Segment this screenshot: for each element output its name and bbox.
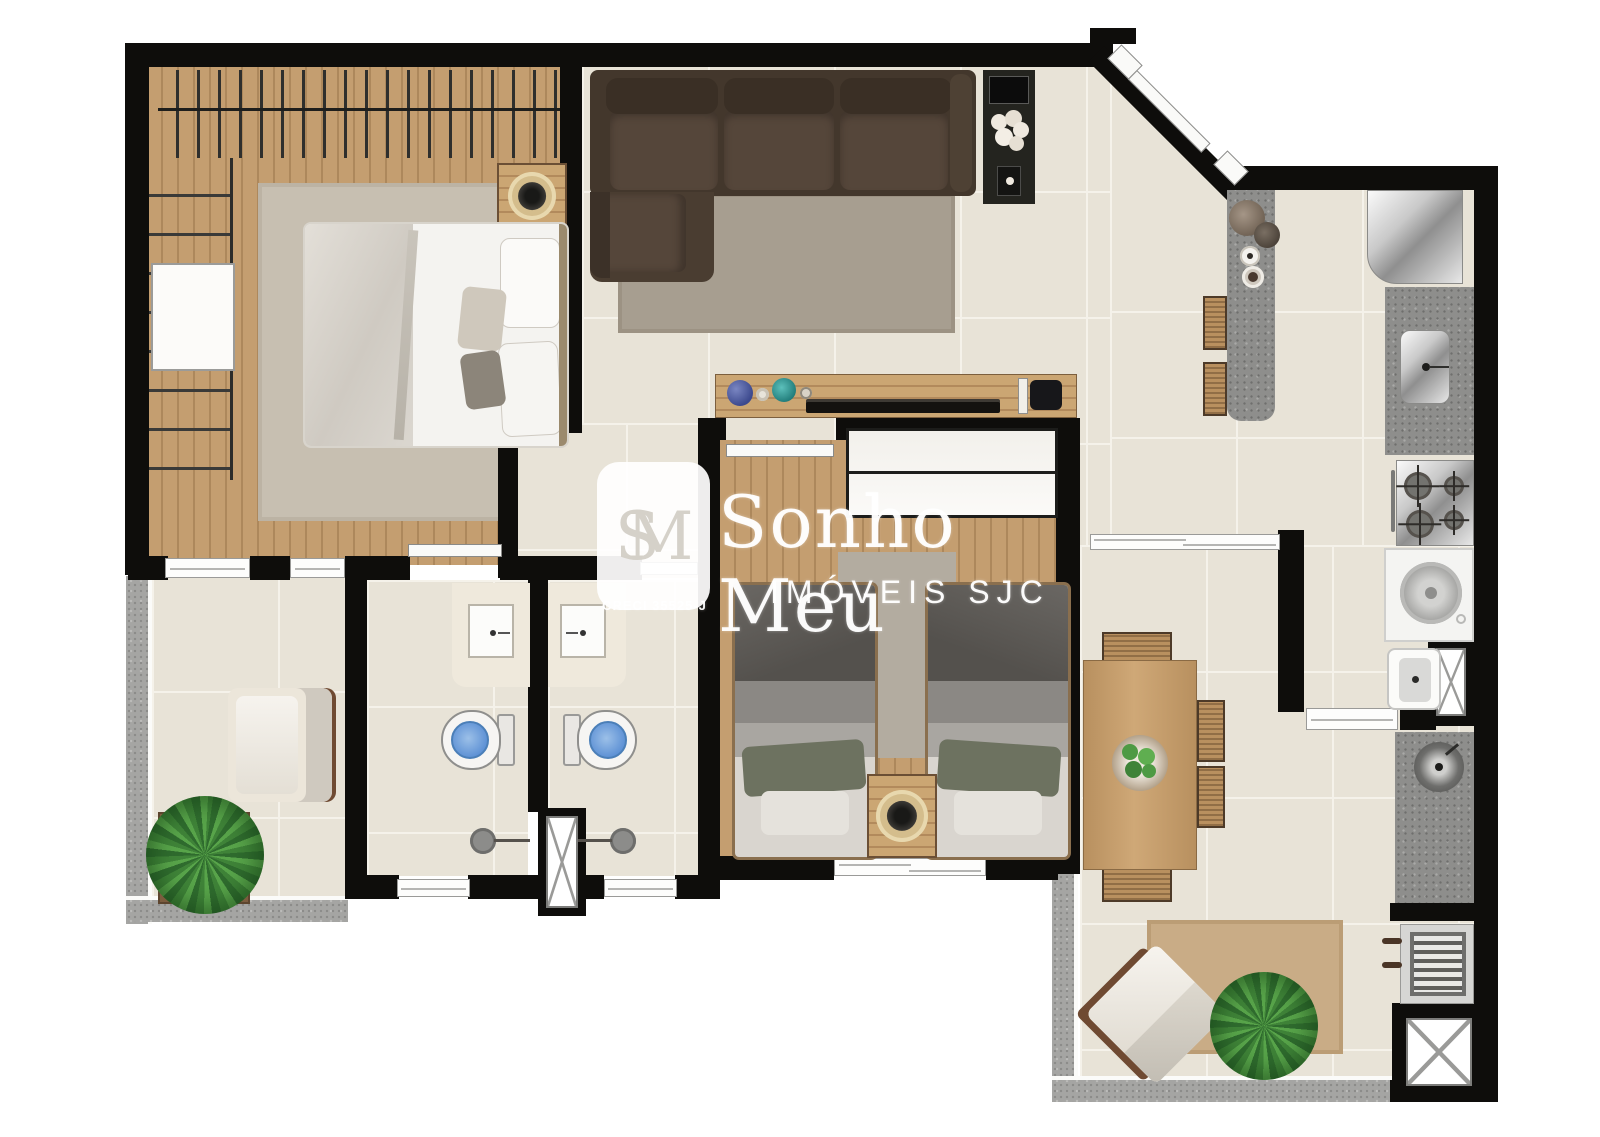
decor-bowl xyxy=(772,378,796,402)
decor-dish xyxy=(1240,246,1260,266)
vanity-sink-icon xyxy=(560,604,606,658)
twin-bed-icon xyxy=(928,585,1068,857)
laundry-tub-icon xyxy=(1387,648,1441,710)
duct-shaft-icon xyxy=(1406,1018,1472,1086)
wall xyxy=(250,556,290,580)
wall xyxy=(128,556,168,580)
wall xyxy=(718,418,726,440)
wall xyxy=(1090,28,1136,44)
closet-cabinet xyxy=(151,263,235,371)
dining-chair-icon xyxy=(1102,868,1172,902)
decor-cup xyxy=(1242,266,1264,288)
hanger-rack-icon xyxy=(158,70,560,158)
skewer-handle xyxy=(1382,938,1402,944)
burner-icon xyxy=(1444,510,1464,530)
armchair-icon xyxy=(228,688,332,802)
balcony-ledge xyxy=(1052,874,1078,1102)
vanity-sink-icon xyxy=(468,604,514,658)
wall xyxy=(1474,166,1498,1102)
shower-pipe xyxy=(578,839,612,842)
remote-icon xyxy=(1018,378,1028,414)
wall xyxy=(468,875,604,899)
wall xyxy=(1390,903,1498,921)
wall xyxy=(345,580,367,878)
washing-machine-icon xyxy=(1384,548,1474,642)
twin-bed-icon xyxy=(735,585,875,857)
cooktop-icon xyxy=(1396,460,1474,546)
shower-head-icon xyxy=(470,828,496,854)
burner-icon xyxy=(1404,472,1432,500)
decor-dish xyxy=(756,388,769,401)
wall xyxy=(125,43,149,575)
burner-icon xyxy=(1406,510,1434,538)
decor-dish xyxy=(800,387,812,399)
skewer-handle xyxy=(1382,962,1402,968)
toilet-icon xyxy=(441,710,517,770)
window-icon xyxy=(290,558,345,578)
wall xyxy=(528,580,548,812)
wall xyxy=(675,875,720,899)
wall xyxy=(125,43,1113,67)
potted-plant-icon xyxy=(1210,972,1318,1080)
sectional-sofa-icon xyxy=(590,70,976,196)
window-icon xyxy=(834,858,986,876)
duct-shaft-icon xyxy=(546,816,578,908)
wall xyxy=(345,556,410,580)
wall xyxy=(500,556,642,580)
hallway-floor xyxy=(500,423,720,578)
door-leaf-icon xyxy=(640,562,698,575)
dining-chair-icon xyxy=(1197,700,1225,762)
sofa-chaise xyxy=(590,192,714,282)
kitchen-sink-icon xyxy=(1400,330,1450,404)
oven-handle xyxy=(1391,470,1395,532)
sliding-door-icon xyxy=(1090,534,1280,550)
burner-icon xyxy=(1444,476,1464,496)
double-bed-icon xyxy=(305,224,567,446)
flower-vase-icon xyxy=(985,110,1033,158)
potted-plant-icon xyxy=(146,796,264,914)
fruit-bowl-icon xyxy=(1112,735,1168,791)
bar-stool-icon xyxy=(1203,362,1227,416)
wall xyxy=(1278,530,1304,712)
tv-console-icon xyxy=(983,70,1035,204)
floor-plan: SM CRECI 35525-J Sonho Meu IMÓVEIS SJC xyxy=(0,0,1600,1137)
wardrobe-icon xyxy=(846,428,1058,518)
lounge-chair-icon xyxy=(1090,948,1222,1080)
window-icon xyxy=(397,879,470,897)
service-opening xyxy=(1306,708,1398,730)
shower-pipe xyxy=(494,839,530,842)
barbecue-grill-icon xyxy=(1400,924,1474,1004)
wall xyxy=(345,875,399,899)
toilet-icon xyxy=(561,710,637,770)
shower-head-icon xyxy=(610,828,636,854)
door-leaf-icon xyxy=(726,444,834,457)
wall-tv-icon xyxy=(806,402,1000,413)
window-icon xyxy=(604,879,677,897)
decor-bowl xyxy=(1254,222,1280,248)
wall xyxy=(1232,166,1498,190)
refrigerator-icon xyxy=(1367,190,1463,284)
wall xyxy=(718,856,834,880)
bar-stool-icon xyxy=(1203,296,1227,350)
decor-sphere xyxy=(727,380,753,406)
dining-chair-icon xyxy=(1197,766,1225,828)
wall xyxy=(986,856,1058,880)
nightstand-lamp-icon xyxy=(876,790,928,842)
media-box-icon xyxy=(1030,380,1062,410)
round-sink-icon xyxy=(1414,742,1464,792)
window-icon xyxy=(165,558,250,578)
door-leaf-icon xyxy=(408,544,502,557)
wall xyxy=(698,418,720,880)
tv-icon xyxy=(989,76,1029,104)
nightstand-lamp-icon xyxy=(508,172,556,220)
